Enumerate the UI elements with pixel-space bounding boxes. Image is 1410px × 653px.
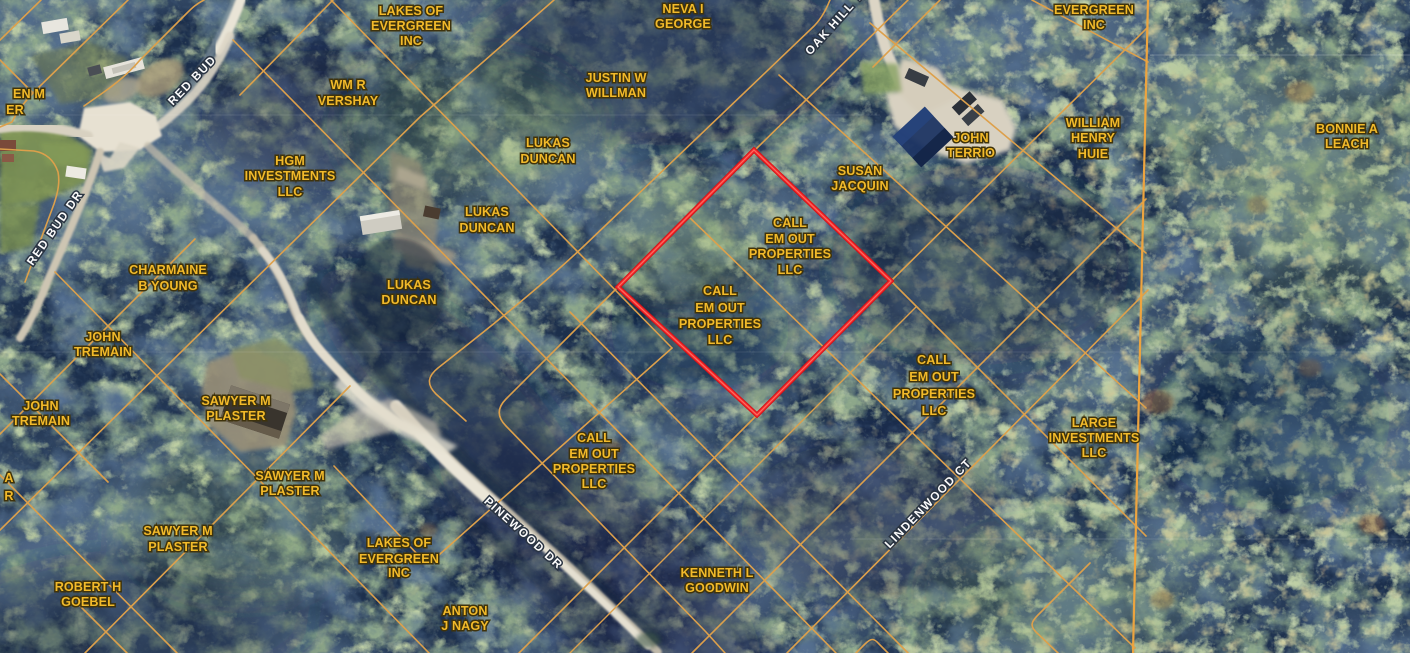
svg-text:JUSTIN W: JUSTIN W [586,71,647,85]
svg-text:R: R [4,489,13,503]
svg-text:KENNETH L: KENNETH L [681,566,754,580]
svg-text:HENRY: HENRY [1071,131,1116,145]
svg-text:WILLMAN: WILLMAN [586,86,646,100]
svg-text:INC: INC [400,34,422,48]
svg-text:LLC: LLC [1082,446,1107,460]
svg-text:DUNCAN: DUNCAN [381,293,436,307]
svg-text:EN M: EN M [13,87,45,101]
svg-text:PROPERTIES: PROPERTIES [553,462,635,476]
svg-text:WM R: WM R [330,78,365,92]
svg-text:EM OUT: EM OUT [765,232,815,246]
svg-text:EVERGREEN: EVERGREEN [359,552,439,566]
svg-text:INVESTMENTS: INVESTMENTS [245,169,336,183]
svg-text:JOHN: JOHN [953,131,988,145]
svg-text:PLASTER: PLASTER [260,484,319,498]
svg-text:INC: INC [388,566,410,580]
svg-text:LLC: LLC [778,263,803,277]
svg-text:TREMAIN: TREMAIN [74,345,132,359]
svg-text:EVERGREEN: EVERGREEN [371,19,451,33]
svg-text:TREMAIN: TREMAIN [12,414,70,428]
svg-text:B YOUNG: B YOUNG [138,279,197,293]
svg-text:BONNIE A: BONNIE A [1316,122,1378,136]
svg-text:EM OUT: EM OUT [695,301,745,315]
svg-text:EM OUT: EM OUT [569,447,619,461]
svg-text:CALL: CALL [703,284,737,298]
svg-text:EVERGREEN: EVERGREEN [1054,3,1134,17]
svg-text:SUSAN: SUSAN [838,164,883,178]
svg-text:GOODWIN: GOODWIN [685,581,749,595]
svg-text:LLC: LLC [582,477,607,491]
svg-text:LLC: LLC [708,333,733,347]
svg-text:NEVA I: NEVA I [662,2,703,16]
svg-text:TERRIO: TERRIO [947,146,995,160]
svg-text:PROPERTIES: PROPERTIES [679,317,761,331]
svg-text:CHARMAINE: CHARMAINE [129,263,207,277]
svg-text:LLC: LLC [922,404,947,418]
svg-text:J NAGY: J NAGY [441,619,489,633]
svg-text:LUKAS: LUKAS [465,205,509,219]
svg-text:INC: INC [1083,18,1105,32]
svg-text:HGM: HGM [275,154,305,168]
svg-text:JOHN: JOHN [23,399,58,413]
svg-text:HUIE: HUIE [1078,147,1109,161]
svg-text:PROPERTIES: PROPERTIES [749,247,831,261]
svg-text:GEORGE: GEORGE [655,17,711,31]
svg-text:CALL: CALL [773,216,807,230]
svg-text:LARGE: LARGE [1072,416,1117,430]
svg-text:PLASTER: PLASTER [148,540,207,554]
svg-text:SAWYER M: SAWYER M [143,524,212,538]
svg-text:SAWYER M: SAWYER M [201,394,270,408]
svg-text:GOEBEL: GOEBEL [61,595,115,609]
svg-text:LLC: LLC [278,185,303,199]
svg-text:ROBERT H: ROBERT H [55,580,122,594]
svg-text:ER: ER [6,103,24,117]
svg-text:CALL: CALL [577,431,611,445]
svg-text:LAKES OF: LAKES OF [367,536,432,550]
svg-text:SAWYER M: SAWYER M [255,469,324,483]
svg-text:ANTON: ANTON [442,604,487,618]
svg-text:LUKAS: LUKAS [387,278,431,292]
svg-text:JACQUIN: JACQUIN [831,179,888,193]
svg-text:INVESTMENTS: INVESTMENTS [1049,431,1140,445]
svg-text:DUNCAN: DUNCAN [520,152,575,166]
svg-text:VERSHAY: VERSHAY [318,94,379,108]
svg-text:EM OUT: EM OUT [909,370,959,384]
svg-text:LUKAS: LUKAS [526,136,570,150]
svg-text:CALL: CALL [917,353,951,367]
svg-text:PROPERTIES: PROPERTIES [893,387,975,401]
svg-text:LAKES OF: LAKES OF [379,4,444,18]
svg-text:DUNCAN: DUNCAN [459,221,514,235]
svg-text:JOHN: JOHN [85,330,120,344]
svg-text:A: A [4,471,13,485]
svg-text:WILLIAM: WILLIAM [1066,116,1121,130]
svg-text:LEACH: LEACH [1325,137,1369,151]
svg-text:PLASTER: PLASTER [206,409,265,423]
